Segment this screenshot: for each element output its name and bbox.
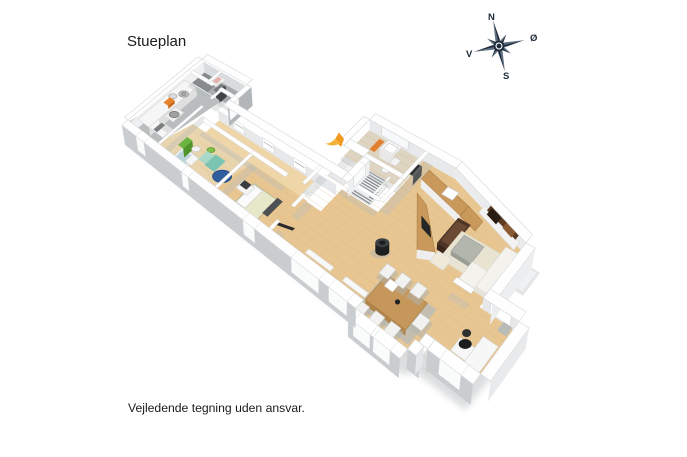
svg-text:V: V xyxy=(466,49,473,60)
svg-text:S: S xyxy=(503,71,509,82)
svg-text:Vejledende tegning uden ansvar: Vejledende tegning uden ansvar. xyxy=(128,401,305,415)
svg-text:N: N xyxy=(488,12,495,23)
svg-text:Ø: Ø xyxy=(530,33,537,44)
svg-text:Stueplan: Stueplan xyxy=(127,33,186,50)
